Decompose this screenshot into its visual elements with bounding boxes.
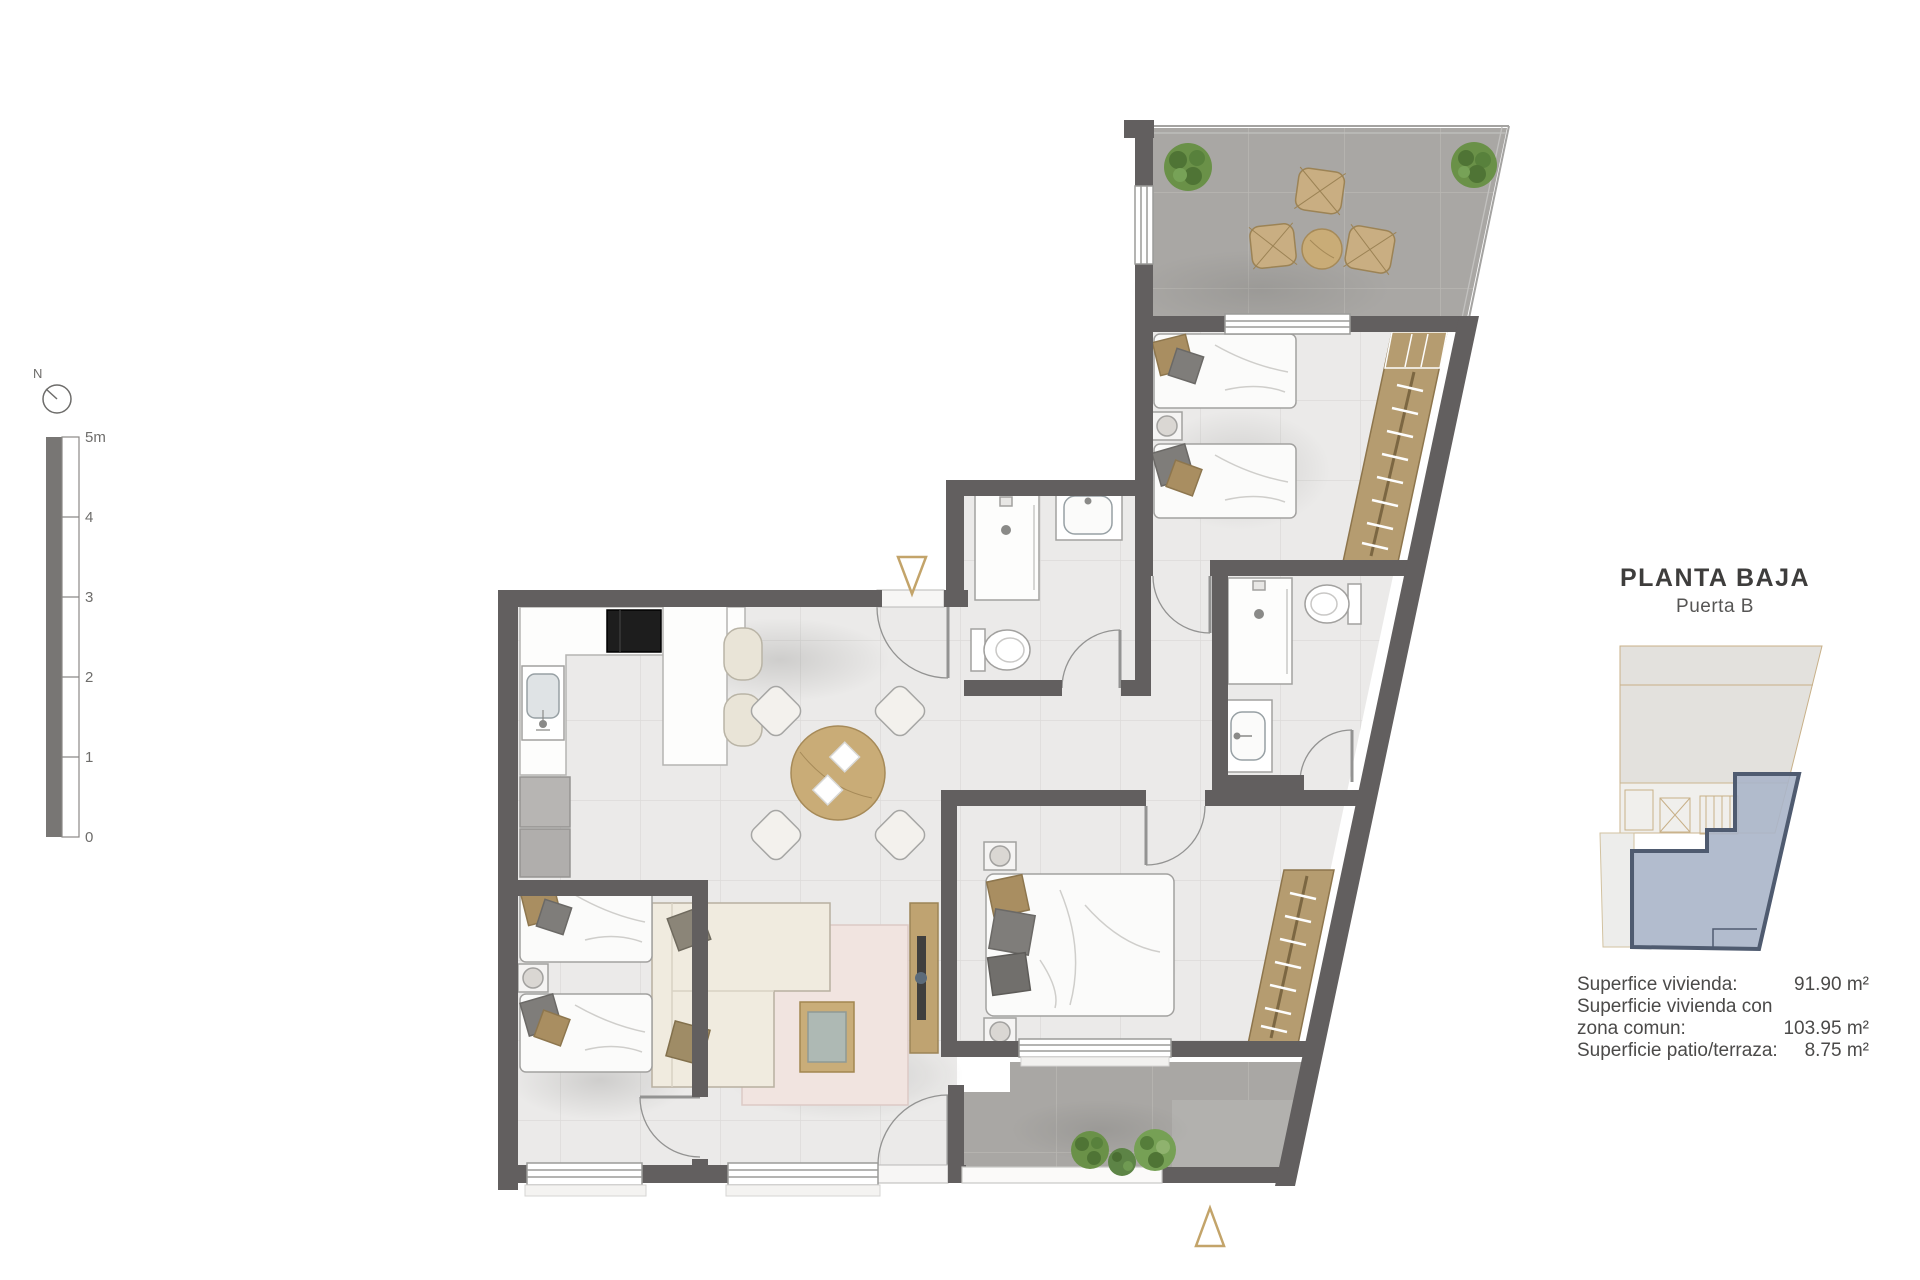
scale-tick-label: 3 xyxy=(85,589,93,606)
legend-label: Superficie patio/terraza: xyxy=(1577,1040,1778,1062)
nightstand xyxy=(984,842,1016,870)
window xyxy=(1225,314,1350,334)
scale-tick-label: 2 xyxy=(85,669,93,686)
scale-tick-label: 5m xyxy=(85,429,106,446)
single-bed xyxy=(1152,334,1296,408)
single-bed xyxy=(1152,444,1296,518)
scale-tick-label: 4 xyxy=(85,509,93,526)
plant xyxy=(1071,1131,1109,1169)
legend-row: Superficie vivienda con xyxy=(1577,996,1869,1018)
plan-subtitle: Puerta B xyxy=(1565,596,1865,618)
single-bed xyxy=(520,994,652,1072)
appliance xyxy=(520,829,570,877)
compass-icon xyxy=(43,385,71,413)
area-legend: Superfice vivienda: 91.90 m² Superficie … xyxy=(1577,974,1869,1062)
scale-tick-label: 1 xyxy=(85,749,93,766)
legend-row: zona comun: 103.95 m² xyxy=(1577,1018,1869,1040)
plant xyxy=(1164,143,1212,191)
nightstand xyxy=(518,964,548,992)
key-plan xyxy=(1600,646,1822,949)
title-block: PLANTA BAJA Puerta B xyxy=(1565,564,1865,618)
entry-arrow-bottom xyxy=(1196,1208,1224,1246)
patio-step xyxy=(1172,1100,1297,1167)
terrace-chair xyxy=(1249,223,1297,269)
shower xyxy=(1228,578,1292,684)
compass-north-label: N xyxy=(33,366,42,381)
toilet xyxy=(1305,584,1361,624)
shower xyxy=(975,494,1039,600)
stool xyxy=(724,628,762,680)
legend-label: Superficie vivienda con xyxy=(1577,996,1772,1018)
legend-value: 103.95 m² xyxy=(1783,1018,1869,1040)
kitchen-island xyxy=(663,605,727,765)
window-sill xyxy=(525,1185,646,1196)
terrace-chair xyxy=(1344,224,1397,274)
terrace-table xyxy=(1302,229,1342,269)
plant xyxy=(1451,142,1497,188)
terrace-chair xyxy=(1294,167,1345,215)
legend-row: Superfice vivienda: 91.90 m² xyxy=(1577,974,1869,996)
coffee-table xyxy=(800,1002,854,1072)
plant xyxy=(1134,1129,1176,1171)
dining-table xyxy=(791,726,885,820)
double-bed xyxy=(986,874,1174,1016)
legend-label: zona comun: xyxy=(1577,1018,1686,1040)
scale-tick-label: 0 xyxy=(85,829,93,846)
window xyxy=(527,1163,642,1185)
cooktop xyxy=(607,610,661,652)
window xyxy=(728,1163,878,1185)
floor-plan-page: N 5m 4 3 2 1 0 PLANTA BAJA Puerta B Supe… xyxy=(0,0,1920,1280)
window-sill xyxy=(1021,1057,1169,1066)
tv-console xyxy=(910,903,938,1053)
legend-value: 91.90 m² xyxy=(1794,974,1869,996)
floor-plan-graphic xyxy=(0,0,1920,1280)
plan-title: PLANTA BAJA xyxy=(1565,564,1865,593)
legend-label: Superfice vivienda: xyxy=(1577,974,1738,996)
toilet xyxy=(971,629,1030,671)
sink xyxy=(1224,700,1272,772)
scale-bar xyxy=(46,437,79,837)
appliance xyxy=(520,777,570,827)
window xyxy=(1135,186,1153,264)
kitchen-sink xyxy=(522,666,564,740)
window-sill xyxy=(726,1185,880,1196)
sink xyxy=(1056,490,1122,540)
nightstand xyxy=(1152,412,1182,440)
legend-value: 8.75 m² xyxy=(1805,1040,1869,1062)
entry-arrow-top xyxy=(898,557,926,594)
window xyxy=(1019,1039,1171,1057)
legend-row: Superficie patio/terraza: 8.75 m² xyxy=(1577,1040,1869,1062)
plant xyxy=(1108,1148,1136,1176)
